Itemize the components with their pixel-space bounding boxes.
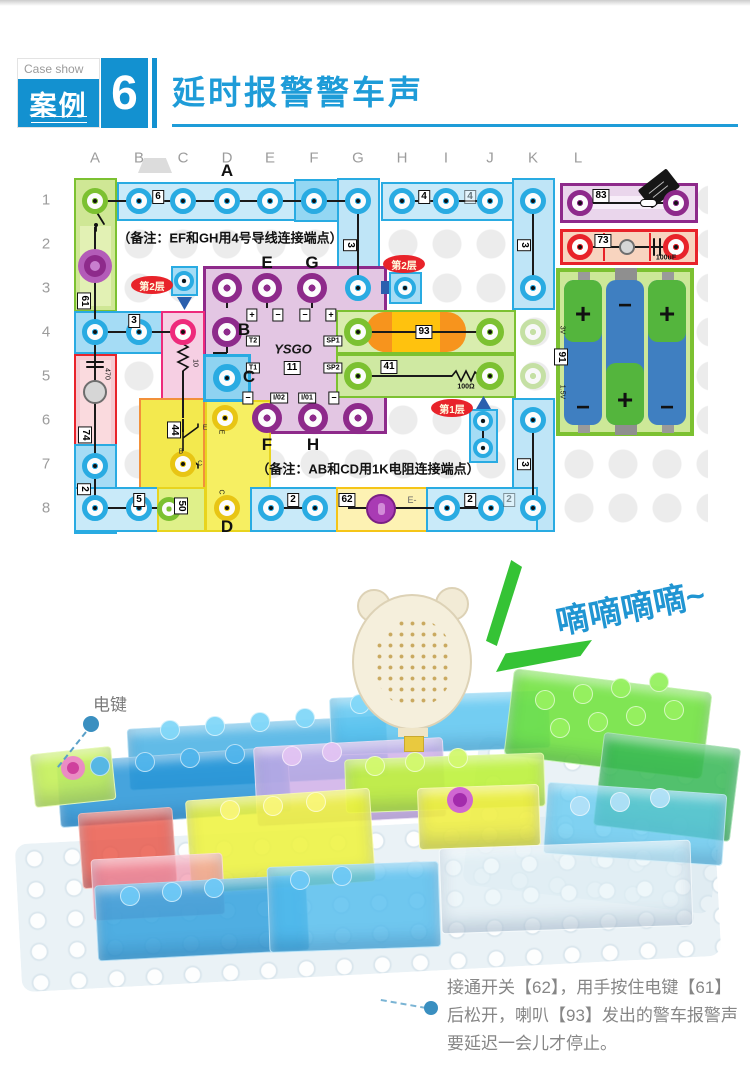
shape-circ (162, 882, 182, 902)
shape-circ (332, 866, 352, 886)
shape-circ (135, 752, 155, 772)
pointer-dot (83, 716, 99, 732)
shape-circ (322, 742, 342, 762)
shape-circ (664, 700, 684, 720)
shape-circ (649, 672, 669, 692)
speaker-holes (374, 618, 454, 708)
caption-line: 接通开关【62】，用手按住电键【61】 (447, 974, 739, 1002)
shape-circ (204, 878, 224, 898)
shape-circ (263, 796, 283, 816)
shape-circ (365, 756, 385, 776)
shape-circ (573, 684, 593, 704)
shape-circ (220, 800, 240, 820)
photo-key-button-core (67, 762, 79, 774)
shape-circ (448, 748, 468, 768)
photo-block (439, 840, 694, 935)
shape-circ (405, 752, 425, 772)
shape-circ (610, 792, 630, 812)
shape-circ (160, 720, 180, 740)
shape-circ (225, 744, 245, 764)
shape-circ (250, 712, 270, 732)
shape-circ (650, 788, 670, 808)
shape-circ (282, 746, 302, 766)
product-photo: 嘀嘀嘀嘀~电键 (0, 0, 750, 1084)
shape-circ (611, 678, 631, 698)
shape-circ (550, 718, 570, 738)
photo-block (417, 784, 541, 850)
shape-circ (626, 706, 646, 726)
shape-circ (180, 748, 200, 768)
caption-line: 后松开，喇叭【93】发出的警车报警声 (447, 1002, 739, 1030)
sound-text: 嘀嘀嘀嘀~ (551, 568, 709, 644)
key-label: 电键 (93, 691, 127, 716)
shape-circ (295, 708, 315, 728)
page: Case show 案例 6 延时报警警车声 ABCDEFGHIJKL12345… (0, 0, 750, 1084)
photo-button-62-core (453, 793, 467, 807)
flash-icon (496, 640, 592, 672)
speaker-stand (404, 736, 424, 752)
shape-circ (588, 712, 608, 732)
shape-circ (535, 690, 555, 710)
shape-circ (290, 870, 310, 890)
shape-circ (120, 886, 140, 906)
caption-line: 要延迟一会儿才停止。 (447, 1030, 739, 1058)
flash-icon (486, 560, 522, 646)
shape-circ (205, 716, 225, 736)
shape-circ (90, 756, 110, 776)
caption-pointer-dot (424, 1001, 438, 1015)
shape-circ (306, 792, 326, 812)
shape-circ (570, 796, 590, 816)
caption: 接通开关【62】，用手按住电键【61】 后松开，喇叭【93】发出的警车报警声 要… (447, 974, 739, 1058)
